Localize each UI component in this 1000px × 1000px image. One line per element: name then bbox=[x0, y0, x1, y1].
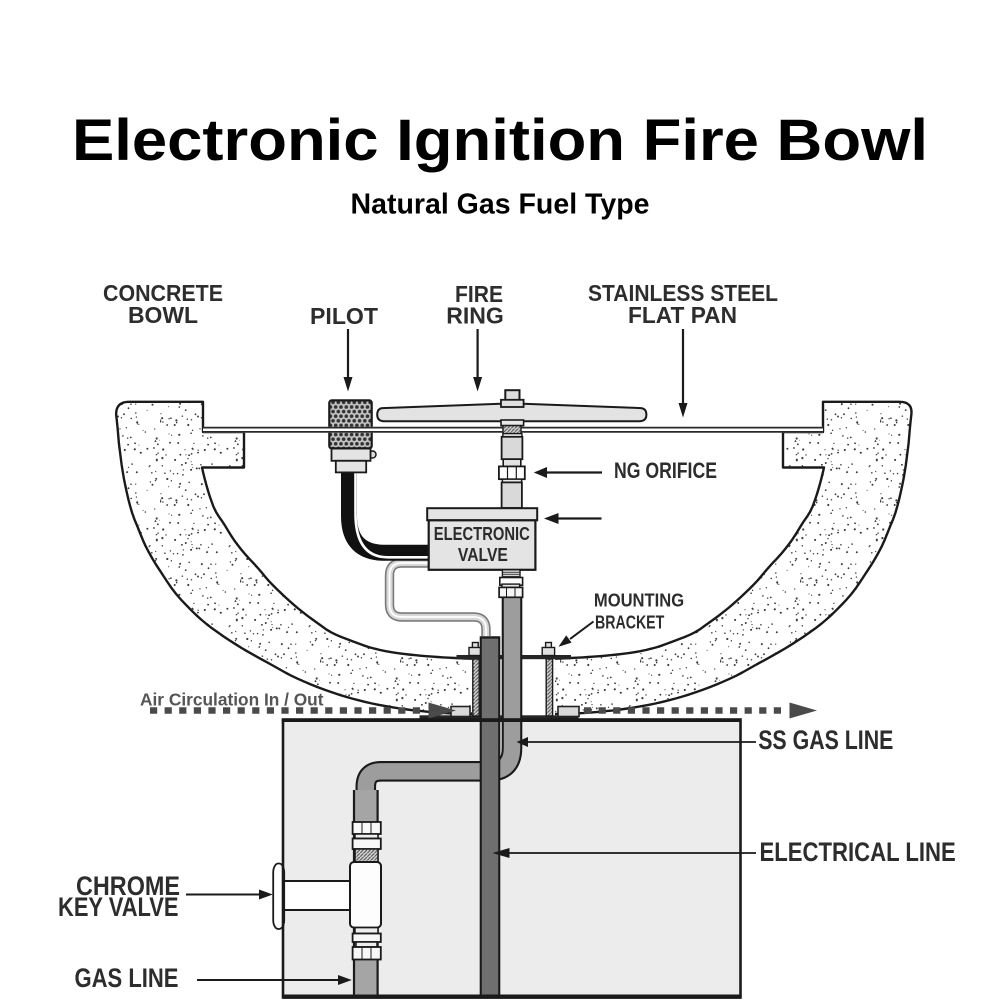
svg-text:ELECTRICAL LINE: ELECTRICAL LINE bbox=[760, 837, 956, 867]
svg-text:KEY VALVE: KEY VALVE bbox=[58, 892, 179, 922]
svg-text:SS GAS LINE: SS GAS LINE bbox=[758, 725, 893, 755]
svg-text:NG ORIFICE: NG ORIFICE bbox=[614, 458, 717, 483]
svg-text:GAS LINE: GAS LINE bbox=[75, 963, 179, 993]
svg-text:RING: RING bbox=[446, 303, 504, 329]
svg-text:VALVE: VALVE bbox=[458, 544, 508, 565]
svg-text:ELECTRONIC: ELECTRONIC bbox=[434, 523, 530, 544]
svg-text:PILOT: PILOT bbox=[310, 303, 379, 329]
svg-text:Natural Gas Fuel Type: Natural Gas Fuel Type bbox=[351, 189, 650, 221]
svg-text:Air Circulation In / Out: Air Circulation In / Out bbox=[140, 690, 324, 710]
svg-text:FLAT PAN: FLAT PAN bbox=[628, 302, 737, 328]
svg-text:BRACKET: BRACKET bbox=[595, 611, 665, 632]
svg-text:MOUNTING: MOUNTING bbox=[594, 589, 684, 610]
svg-text:BOWL: BOWL bbox=[128, 302, 198, 328]
svg-text:Electronic Ignition Fire Bowl: Electronic Ignition Fire Bowl bbox=[72, 108, 928, 173]
